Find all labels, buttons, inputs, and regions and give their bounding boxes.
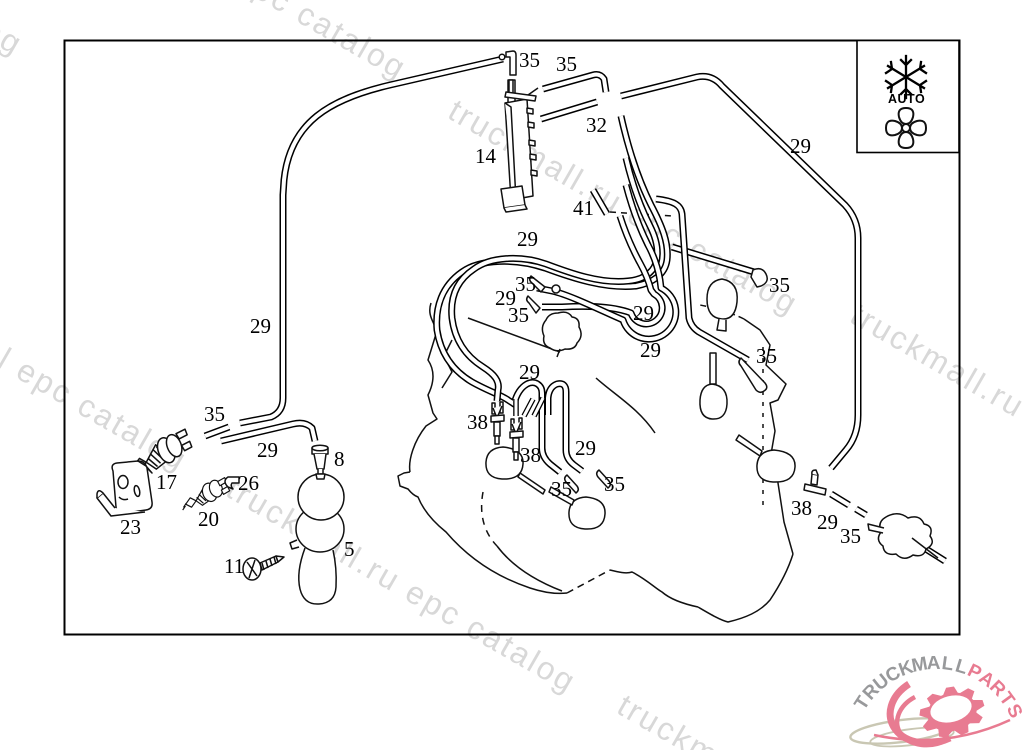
svg-text:35: 35 — [515, 272, 536, 296]
svg-text:29: 29 — [519, 360, 540, 384]
svg-text:pc catalog: pc catalog — [248, 0, 414, 86]
svg-text:35: 35 — [204, 402, 225, 426]
svg-text:29: 29 — [517, 227, 538, 251]
svg-text:35: 35 — [556, 52, 577, 76]
svg-text:35: 35 — [604, 472, 625, 496]
svg-text:35: 35 — [551, 477, 572, 501]
svg-text:29: 29 — [640, 338, 661, 362]
svg-text:A: A — [926, 653, 941, 674]
svg-text:38: 38 — [520, 443, 541, 467]
svg-text:35: 35 — [519, 48, 540, 72]
svg-text:29: 29 — [633, 301, 654, 325]
svg-text:26: 26 — [238, 471, 259, 495]
svg-text:35: 35 — [756, 344, 777, 368]
svg-text:38: 38 — [791, 496, 812, 520]
svg-text:29: 29 — [790, 134, 811, 158]
svg-text:5: 5 — [344, 537, 355, 561]
svg-text:35: 35 — [508, 303, 529, 327]
svg-text:29: 29 — [257, 438, 278, 462]
svg-text:AUTO: AUTO — [888, 92, 925, 106]
svg-text:35: 35 — [769, 273, 790, 297]
svg-text:truckmall.ru epc: truckmall.ru epc — [612, 687, 860, 750]
svg-text:truckmall.ru epc catalog: truckmall.ru epc catalog — [221, 470, 584, 700]
svg-text:11: 11 — [224, 554, 244, 578]
svg-text:og: og — [0, 11, 30, 62]
svg-text:23: 23 — [120, 515, 141, 539]
svg-text:20: 20 — [198, 507, 219, 531]
svg-text:29: 29 — [817, 510, 838, 534]
svg-text:14: 14 — [475, 144, 497, 168]
svg-text:35: 35 — [840, 524, 861, 548]
svg-text:8: 8 — [334, 447, 345, 471]
svg-text:17: 17 — [156, 470, 177, 494]
svg-text:truckmall.ru epc catalog: truckmall.ru epc catalog — [845, 296, 1024, 526]
svg-text:41: 41 — [573, 196, 594, 220]
svg-text:38: 38 — [467, 410, 488, 434]
svg-text:29: 29 — [250, 314, 271, 338]
svg-text:32: 32 — [586, 113, 607, 137]
svg-text:29: 29 — [575, 436, 596, 460]
